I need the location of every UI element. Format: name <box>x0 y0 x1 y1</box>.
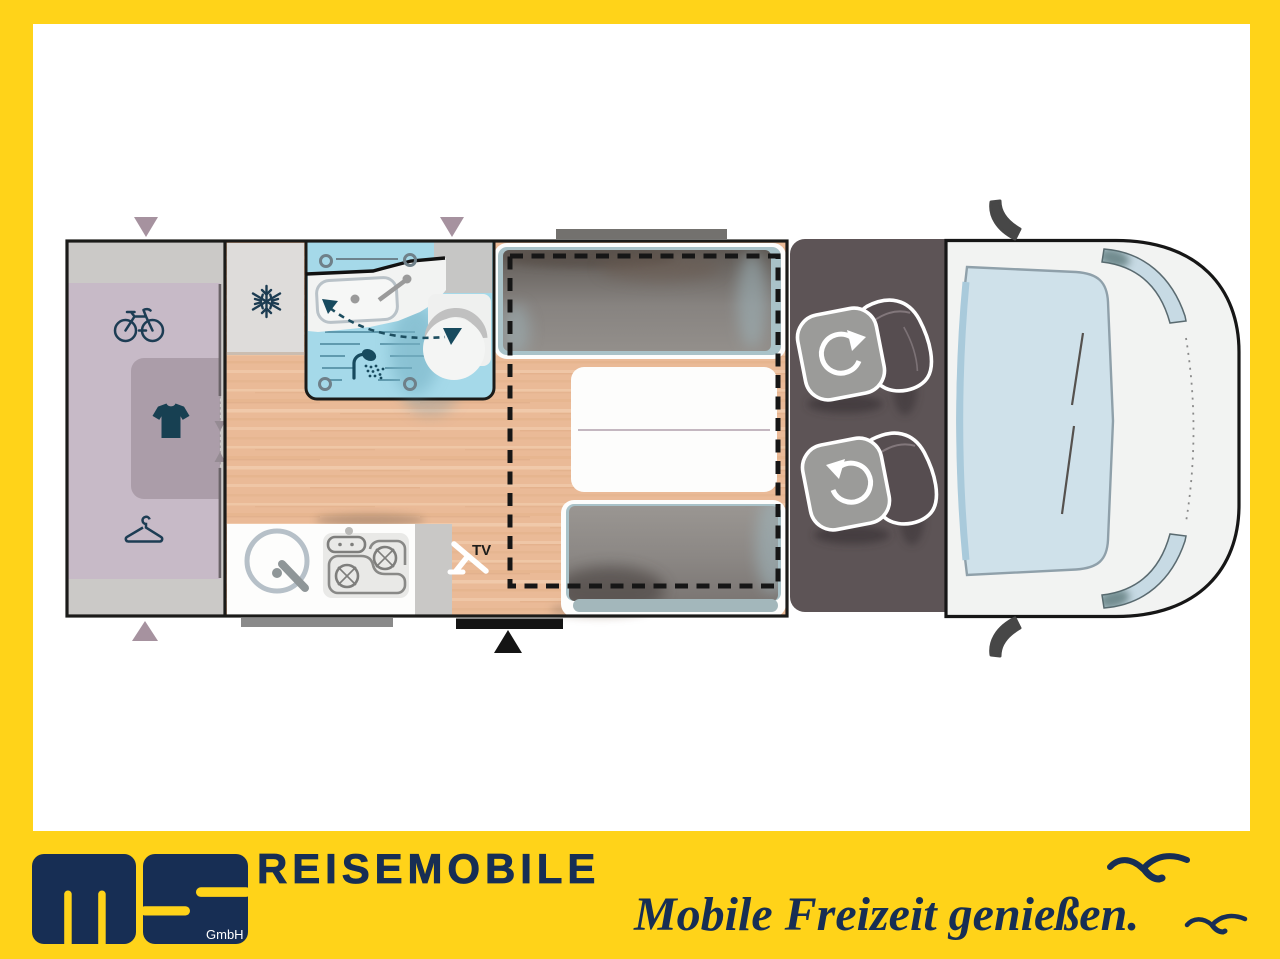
svg-text:GmbH: GmbH <box>206 927 244 942</box>
svg-text:REISEMOBILE: REISEMOBILE <box>257 845 600 892</box>
svg-text:Mobile Freizeit genießen.: Mobile Freizeit genießen. <box>633 888 1139 941</box>
